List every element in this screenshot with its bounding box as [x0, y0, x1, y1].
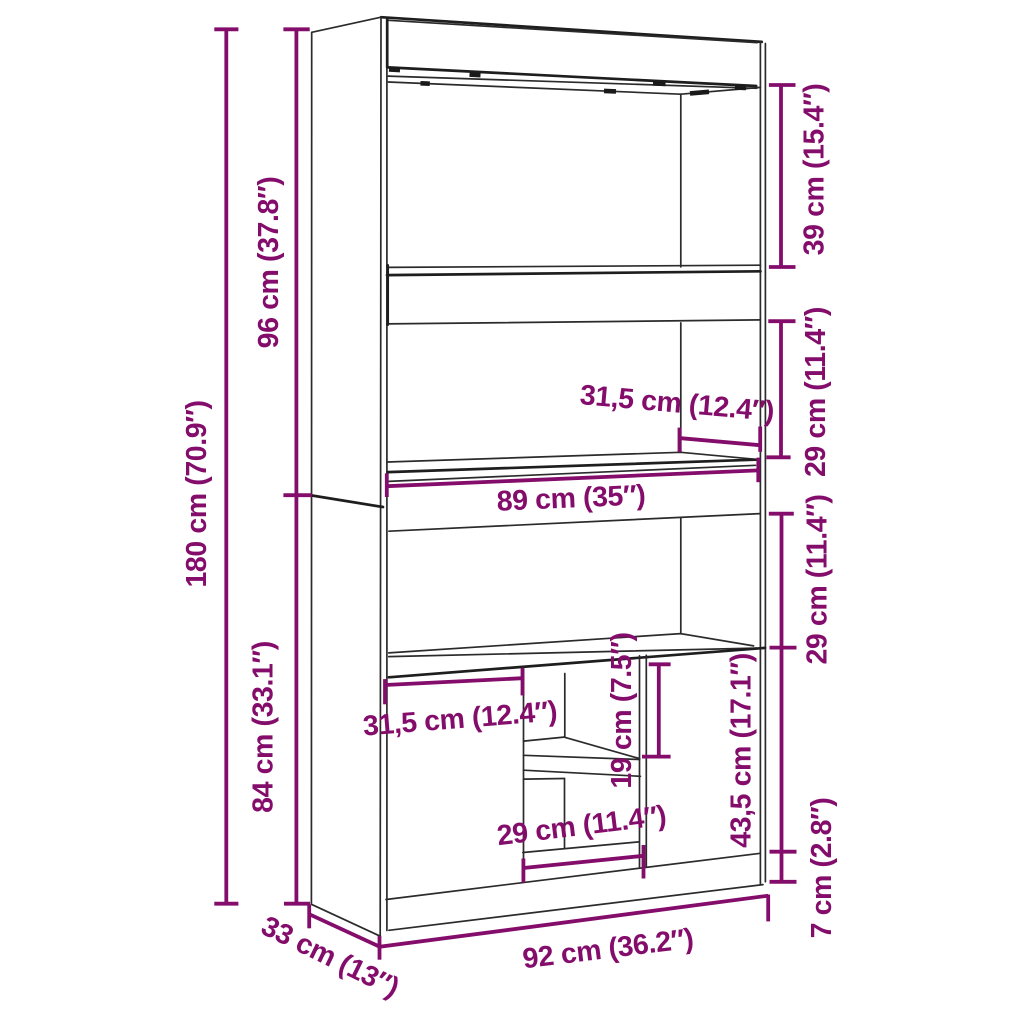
svg-text:180 cm (70.9″): 180 cm (70.9″) [181, 400, 213, 587]
svg-text:29 cm (11.4″): 29 cm (11.4″) [800, 307, 832, 477]
svg-text:29 cm (11.4″): 29 cm (11.4″) [802, 494, 834, 664]
svg-text:43,5 cm (17.1″): 43,5 cm (17.1″) [726, 653, 758, 848]
svg-text:7 cm (2.8″): 7 cm (2.8″) [806, 798, 838, 939]
svg-text:96 cm (37.8″): 96 cm (37.8″) [253, 177, 285, 349]
svg-text:89 cm (35″): 89 cm (35″) [496, 479, 646, 517]
svg-text:39 cm (15.4″): 39 cm (15.4″) [799, 84, 831, 256]
svg-text:84 cm (33.1″): 84 cm (33.1″) [248, 641, 280, 813]
svg-text:19 cm (7.5″): 19 cm (7.5″) [606, 632, 638, 788]
